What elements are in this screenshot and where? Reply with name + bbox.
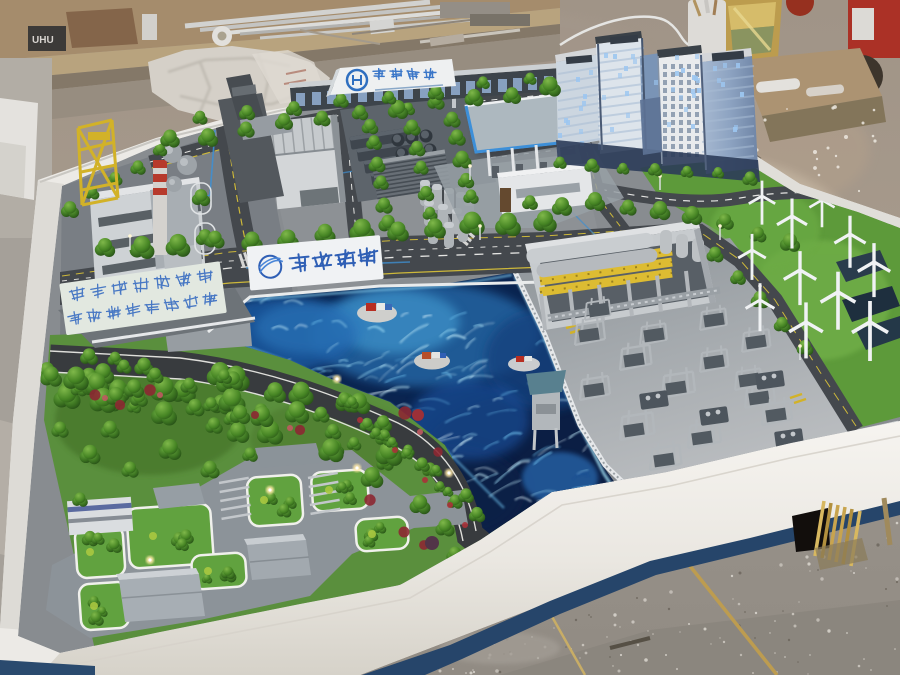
svg-text:UHU: UHU: [32, 35, 54, 46]
